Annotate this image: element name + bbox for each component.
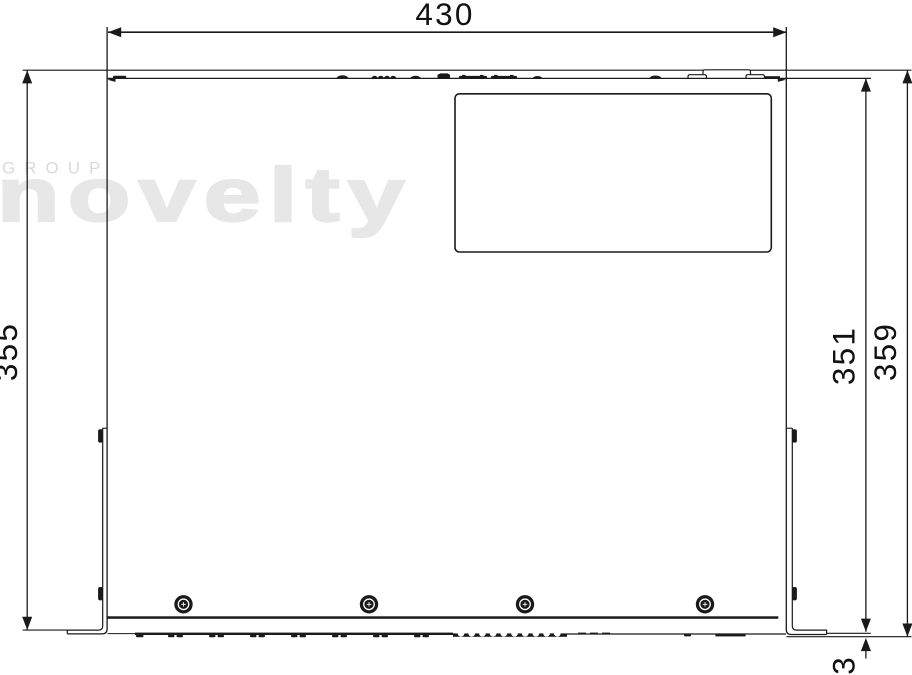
svg-text:355: 355 — [0, 322, 24, 381]
svg-text:359: 359 — [867, 322, 903, 381]
svg-text:novelty: novelty — [0, 153, 413, 238]
svg-text:3: 3 — [826, 657, 862, 675]
svg-text:430: 430 — [415, 0, 474, 32]
svg-text:351: 351 — [826, 326, 862, 385]
